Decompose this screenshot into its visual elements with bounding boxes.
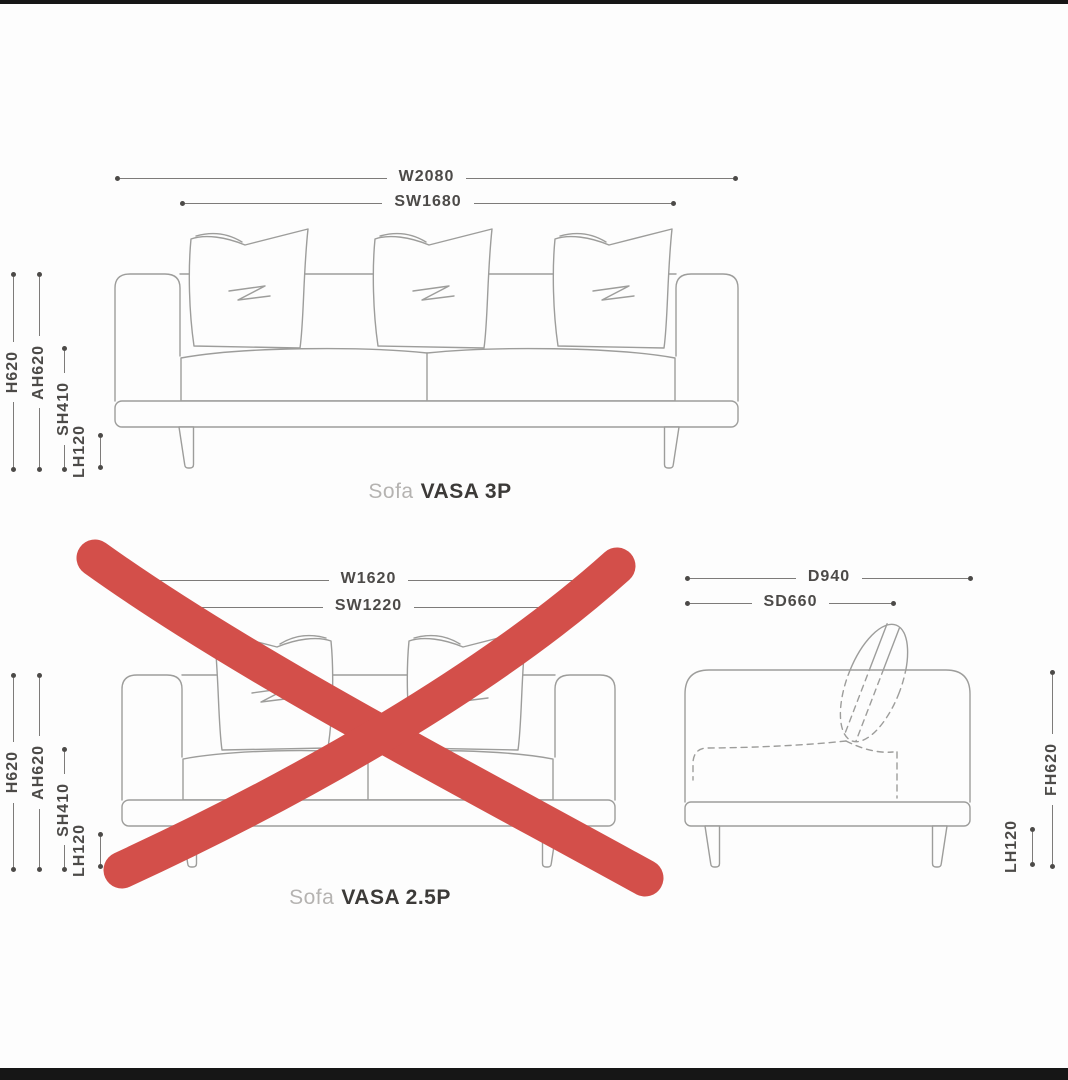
cross-out-mark [0,0,1068,1080]
sofa-dimension-diagram: W2080 SW1680 H620 AH620 SH410 LH120 Sofa… [0,0,1068,1080]
bottom-letterbox-bar [0,1068,1068,1080]
top-letterbox-bar [0,0,1068,4]
